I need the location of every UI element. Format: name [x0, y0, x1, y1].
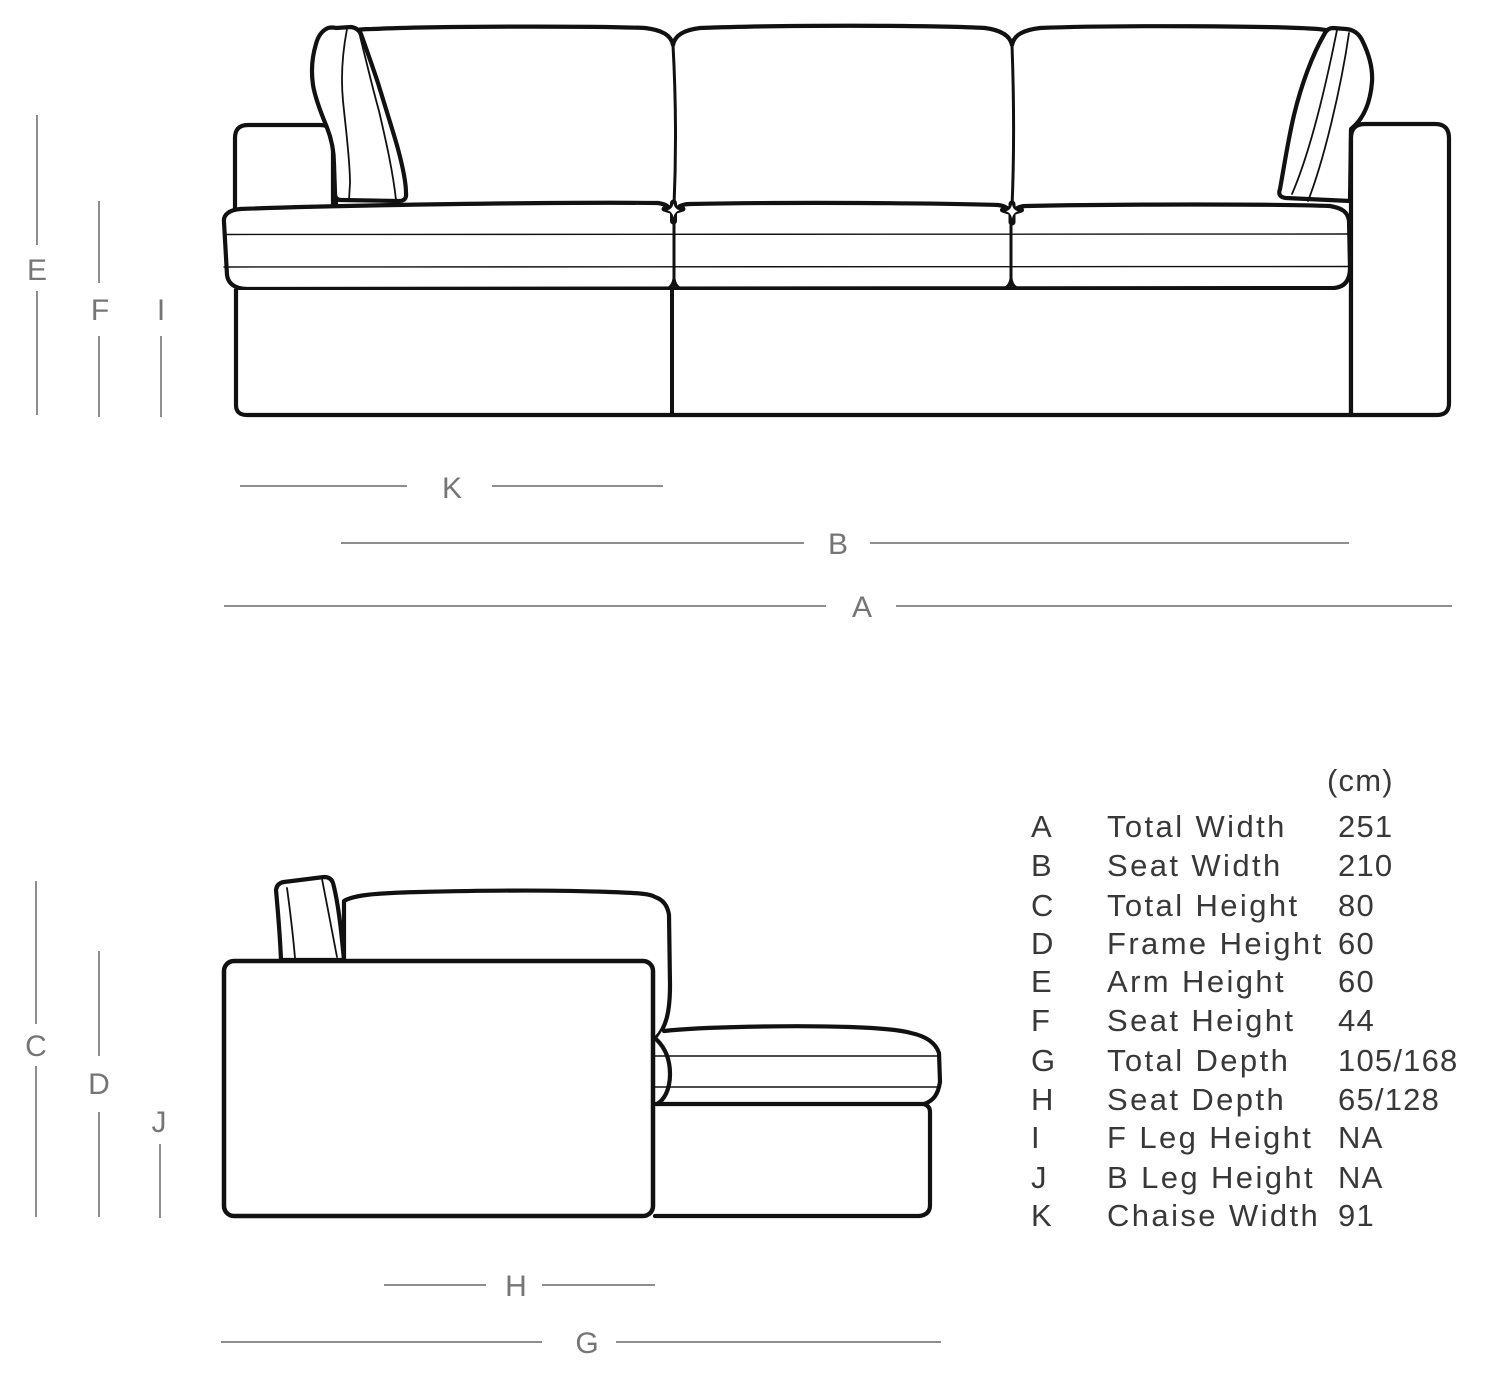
svg-text:Arm Height: Arm Height [1107, 964, 1286, 999]
svg-text:B Leg Height: B Leg Height [1107, 1160, 1315, 1195]
svg-text:B: B [828, 528, 848, 561]
svg-text:60: 60 [1338, 926, 1375, 961]
svg-text:D: D [1031, 926, 1055, 961]
svg-text:I: I [157, 294, 165, 327]
svg-text:F: F [91, 294, 109, 327]
svg-text:D: D [88, 1068, 110, 1101]
svg-text:H: H [1031, 1082, 1055, 1117]
svg-text:65/128: 65/128 [1338, 1082, 1440, 1117]
svg-text:E: E [1031, 964, 1053, 999]
svg-text:J: J [1031, 1160, 1048, 1195]
svg-text:F: F [1031, 1003, 1051, 1038]
svg-text:C: C [25, 1030, 47, 1063]
svg-text:NA: NA [1338, 1120, 1383, 1155]
svg-text:K: K [1031, 1198, 1053, 1233]
svg-text:Seat Depth: Seat Depth [1107, 1082, 1286, 1117]
svg-text:A: A [1031, 809, 1053, 844]
svg-text:Chaise Width: Chaise Width [1107, 1198, 1320, 1233]
svg-text:44: 44 [1338, 1003, 1375, 1038]
svg-text:I: I [1031, 1120, 1041, 1155]
svg-text:J: J [152, 1106, 167, 1139]
svg-text:60: 60 [1338, 964, 1375, 999]
svg-text:Seat Height: Seat Height [1107, 1003, 1295, 1038]
svg-text:Total Depth: Total Depth [1107, 1043, 1290, 1078]
svg-text:G: G [575, 1327, 598, 1360]
svg-text:105/168: 105/168 [1338, 1043, 1458, 1078]
svg-text:Total Height: Total Height [1107, 888, 1300, 923]
svg-text:80: 80 [1338, 888, 1375, 923]
svg-text:F Leg Height: F Leg Height [1107, 1120, 1313, 1155]
svg-text:G: G [1031, 1043, 1056, 1078]
svg-text:251: 251 [1338, 809, 1393, 844]
svg-text:K: K [442, 472, 462, 505]
svg-text:Total Width: Total Width [1107, 809, 1287, 844]
svg-text:E: E [27, 254, 47, 287]
svg-text:210: 210 [1338, 848, 1393, 883]
svg-text:91: 91 [1338, 1198, 1375, 1233]
svg-text:Seat Width: Seat Width [1107, 848, 1283, 883]
svg-text:NA: NA [1338, 1160, 1383, 1195]
svg-text:C: C [1031, 888, 1055, 923]
svg-text:B: B [1031, 848, 1053, 883]
svg-text:Frame Height: Frame Height [1107, 926, 1324, 961]
svg-text:(cm): (cm) [1327, 763, 1394, 798]
svg-text:A: A [852, 591, 872, 624]
svg-text:H: H [505, 1270, 527, 1303]
